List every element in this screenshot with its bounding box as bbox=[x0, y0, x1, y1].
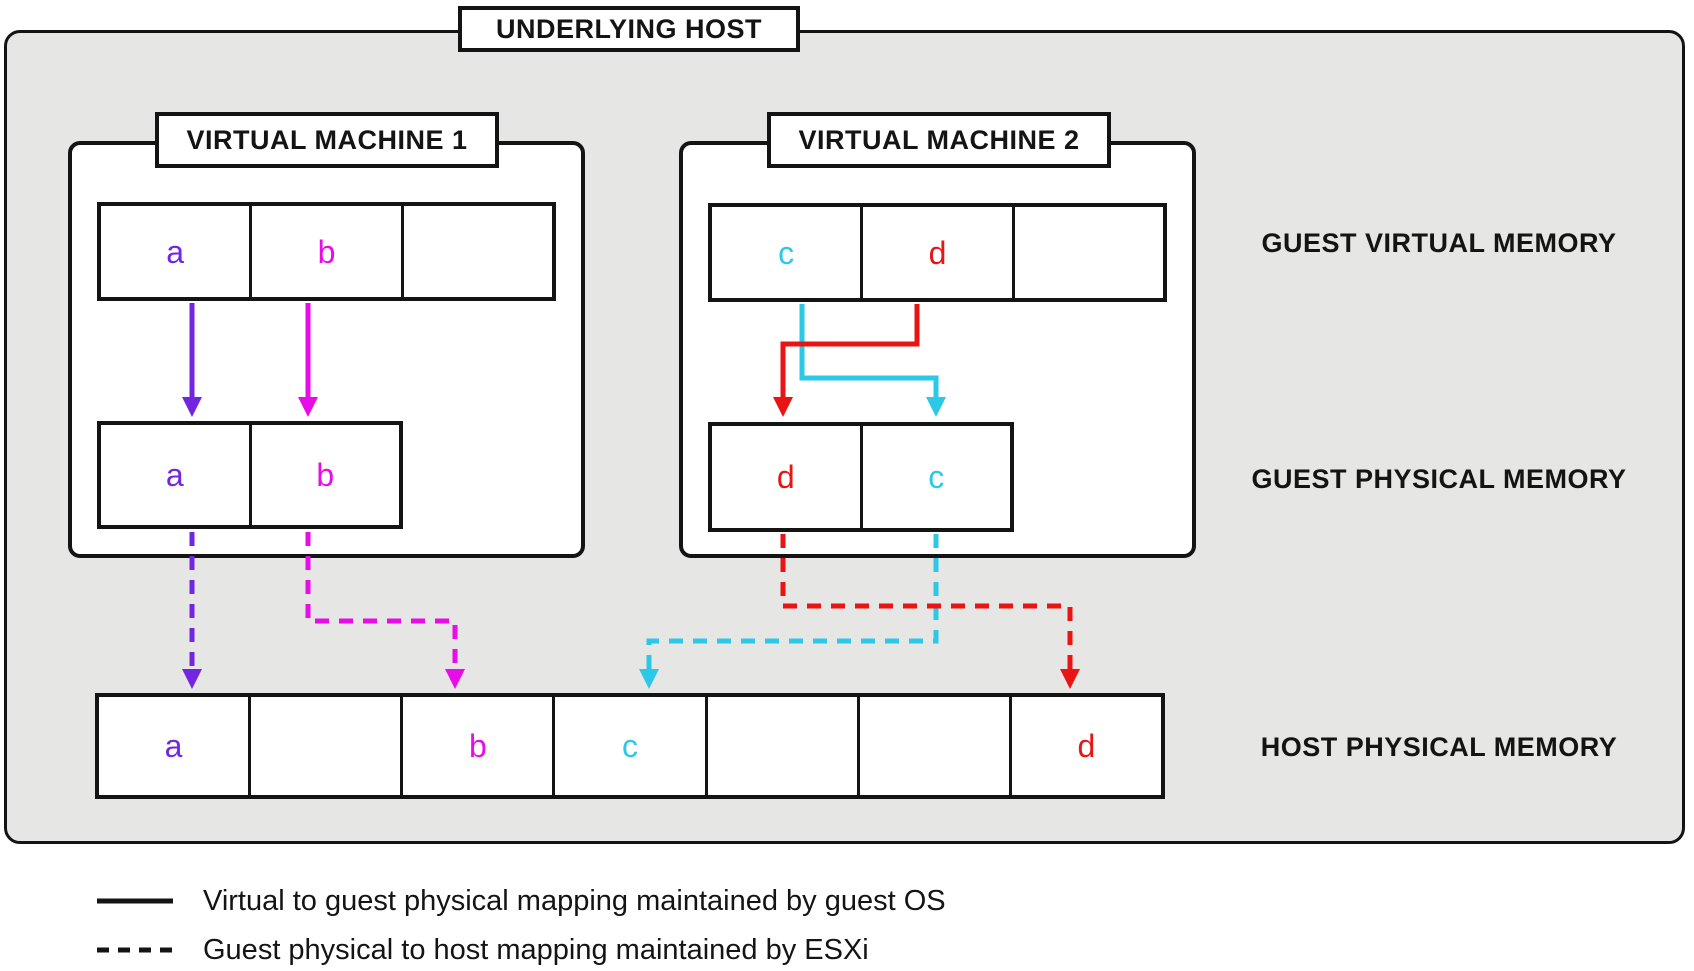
cell-letter: b bbox=[318, 236, 336, 268]
vm2-guest-physical-memory-row: d c bbox=[708, 422, 1014, 532]
memory-cell: c bbox=[863, 426, 1011, 528]
cell-letter: a bbox=[165, 730, 183, 762]
memory-cell: a bbox=[101, 425, 252, 525]
memory-cell bbox=[404, 206, 552, 297]
vm1-guest-physical-memory-row: a b bbox=[97, 421, 403, 529]
legend-solid-label: Virtual to guest physical mapping mainta… bbox=[203, 885, 946, 918]
guest-virtual-memory-label-text: GUEST VIRTUAL MEMORY bbox=[1261, 228, 1616, 259]
cell-letter: a bbox=[166, 236, 184, 268]
legend-item-dashed: Guest physical to host mapping maintaine… bbox=[95, 932, 869, 968]
cell-letter: b bbox=[316, 459, 334, 491]
memory-cell bbox=[251, 697, 403, 795]
guest-physical-memory-label: GUEST PHYSICAL MEMORY bbox=[1200, 463, 1678, 495]
memory-cell: b bbox=[252, 206, 403, 297]
vm2-guest-virtual-memory-row: c d bbox=[708, 203, 1167, 302]
legend-item-solid: Virtual to guest physical mapping mainta… bbox=[95, 883, 946, 919]
host-physical-memory-label-text: HOST PHYSICAL MEMORY bbox=[1261, 732, 1618, 763]
host-physical-memory-row: a b c d bbox=[95, 693, 1165, 799]
memory-cell: a bbox=[101, 206, 252, 297]
cell-letter: d bbox=[1078, 730, 1096, 762]
cell-letter: d bbox=[777, 461, 795, 493]
cell-letter: b bbox=[469, 730, 487, 762]
host-physical-memory-label: HOST PHYSICAL MEMORY bbox=[1200, 731, 1678, 763]
vm1-guest-virtual-memory-row: a b bbox=[97, 202, 556, 301]
virtual-machine-2-title: VIRTUAL MACHINE 2 bbox=[767, 112, 1111, 168]
cell-letter: c bbox=[778, 237, 794, 269]
dashed-line-icon bbox=[95, 946, 175, 954]
virtual-machine-1-title: VIRTUAL MACHINE 1 bbox=[155, 112, 499, 168]
underlying-host-title-text: UNDERLYING HOST bbox=[496, 14, 762, 45]
memory-cell: d bbox=[1012, 697, 1161, 795]
memory-cell: b bbox=[403, 697, 555, 795]
memory-cell: c bbox=[555, 697, 707, 795]
guest-virtual-memory-label: GUEST VIRTUAL MEMORY bbox=[1200, 227, 1678, 259]
cell-letter: c bbox=[928, 461, 944, 493]
solid-line-icon bbox=[95, 897, 175, 905]
cell-letter: c bbox=[622, 730, 638, 762]
guest-physical-memory-label-text: GUEST PHYSICAL MEMORY bbox=[1251, 464, 1626, 495]
legend-dashed-label: Guest physical to host mapping maintaine… bbox=[203, 934, 869, 967]
virtual-machine-1-title-text: VIRTUAL MACHINE 1 bbox=[186, 125, 467, 156]
virtual-machine-2-title-text: VIRTUAL MACHINE 2 bbox=[798, 125, 1079, 156]
memory-cell: d bbox=[863, 207, 1014, 298]
cell-letter: a bbox=[166, 459, 184, 491]
memory-cell: c bbox=[712, 207, 863, 298]
memory-cell: b bbox=[252, 425, 400, 525]
memory-virtualization-diagram: UNDERLYING HOST VIRTUAL MACHINE 1 VIRTUA… bbox=[0, 0, 1694, 971]
cell-letter: d bbox=[929, 237, 947, 269]
memory-cell bbox=[1015, 207, 1163, 298]
memory-cell bbox=[860, 697, 1012, 795]
memory-cell: a bbox=[99, 697, 251, 795]
memory-cell: d bbox=[712, 426, 863, 528]
memory-cell bbox=[708, 697, 860, 795]
underlying-host-title: UNDERLYING HOST bbox=[458, 6, 800, 52]
